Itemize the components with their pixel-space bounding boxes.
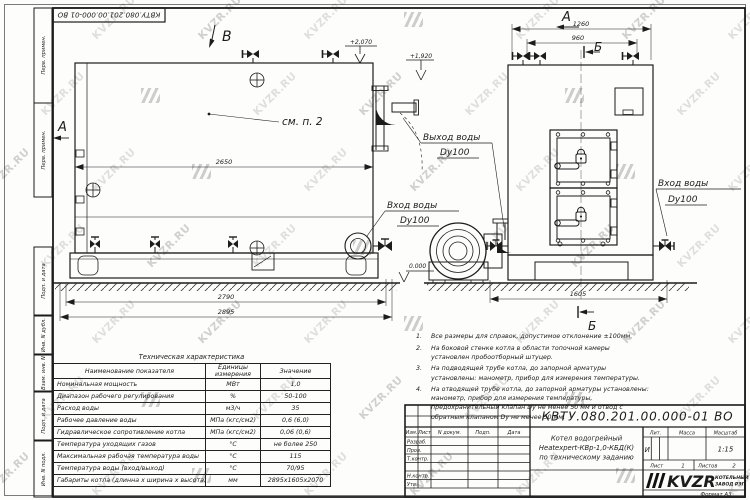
tech-characteristics: Техническая характеристика Наименование … [53, 352, 330, 487]
datum-mark-icon [250, 73, 264, 87]
company-logo-text: KVZR [667, 472, 716, 491]
col-header-unit: Единицы измерения [206, 364, 261, 379]
table-row: Максимальная рабочая температура воды °С… [54, 451, 331, 463]
sheet-value: 1 [681, 464, 685, 470]
table-row: Гидравлическое сопротивление котла МПа (… [54, 427, 331, 439]
dim-2790: 2790 [218, 293, 235, 301]
section-b-bottom-arrow [578, 306, 594, 318]
view-b-arrow [209, 25, 215, 48]
col-data: Дата [507, 430, 521, 436]
safety-valve-icon [243, 50, 260, 63]
table-row: Диапазон рабочего регулирования % 50-100 [54, 391, 331, 403]
view-a-top-label: А [561, 10, 571, 25]
product-name-line2: Heatexpert-КВр-1,0-КБД(К) [539, 444, 634, 452]
safety-valve-icon [623, 52, 640, 65]
view-a-left-label: А [57, 120, 67, 135]
drawing-sheet: KVZR.RUKVZR.RUKVZR.RUKVZR.RUKVZR.RUKVZR.… [0, 0, 750, 500]
stamp-perv-primen-1: Перв. примен. [41, 36, 47, 75]
top-designation-stamp: КВТУ.080.201.00.000-01 ВО [53, 8, 165, 22]
top-designation-text: КВТУ.080.201.00.000-01 ВО [57, 11, 160, 20]
table-header-row: Наименование показателя Единицы измерени… [54, 364, 331, 379]
staff-razrab: Разраб. [407, 440, 427, 446]
boiler-front-view [424, 50, 697, 302]
outlet-label-line2: Dy100 [440, 148, 470, 158]
drain-valve-icon [90, 237, 100, 253]
safety-valve-icon [530, 52, 547, 65]
col-podp: Подп. [475, 430, 490, 436]
sheets-value: 2 [732, 464, 736, 470]
water-inlet-flange [345, 233, 371, 259]
view-b-label: В [222, 29, 232, 45]
elevation-top-label: +2,070 [350, 39, 372, 46]
table-row: Рабочее давление воды МПа (кгс/см2) 0,6 … [54, 415, 331, 427]
side-drain-valve-icon [373, 239, 392, 251]
elevation-zero-label: 0.000 [409, 263, 426, 270]
tech-table-title: Техническая характеристика [53, 352, 330, 363]
tech-table: Наименование показателя Единицы измерени… [53, 363, 331, 487]
col-header-value: Значение [261, 364, 331, 379]
table-row: Температура воды (вход/выход) °С 70/95 [54, 463, 331, 475]
scale-value: 1:15 [718, 446, 734, 454]
table-row: Габариты котла (длинна х ширина х высота… [54, 475, 331, 487]
stamp-inv-dubl: Инв. N дубл. [41, 318, 47, 352]
water-outlet-pipe [372, 86, 422, 172]
dim-1605: 1605 [570, 290, 587, 298]
staff-nkontr: Н.контр. [407, 474, 429, 480]
dim-2650: 2650 [216, 158, 233, 166]
boiler-door-upper [550, 130, 617, 188]
blower-fan [429, 223, 502, 283]
notes-list: 1. Все размеры для справок, допустимое о… [416, 332, 649, 424]
see-note-label: см. п. 2 [282, 116, 323, 128]
lit-label: Лит. [649, 431, 662, 437]
drain-valve-icon [228, 237, 238, 253]
elevation-mark-top [345, 46, 377, 63]
inlet-label-line2: Dy100 [400, 216, 430, 226]
col-izm: Изм. [406, 430, 418, 436]
product-name-line1: Котел водогрейный [551, 435, 623, 443]
note-item: 3. На подводящей трубе котла, до запорно… [416, 364, 649, 382]
section-b-bottom-label: Б [588, 319, 596, 333]
drain-valve-icon [150, 237, 160, 253]
scale-label: Масштаб [714, 431, 738, 437]
dim-2895: 2895 [218, 308, 235, 316]
table-row: Номинальная мощность МВт 1,0 [54, 379, 331, 391]
col-ndoc: N докум. [438, 430, 461, 436]
boiler-side-view [52, 50, 422, 291]
table-row: Температура уходящих газов °С не более 2… [54, 439, 331, 451]
inlet-right-line2: Dy100 [668, 195, 698, 205]
datum-mark-icon [86, 183, 100, 197]
stamp-perv-primen-2: Перв. примен. [41, 131, 47, 170]
note-item: 2. На боковой стенке котла в области топ… [416, 344, 649, 362]
inlet-valve-icon [653, 240, 674, 251]
note-item: 4. На отводящей трубе котла, до запорной… [416, 385, 649, 422]
mass-label: Масса [679, 431, 695, 437]
datum-mark-icon [250, 241, 264, 255]
company-name-line1: КОТЕЛЬНЫЙ [715, 473, 749, 481]
inlet-right-line1: Вход воды [658, 179, 708, 189]
stamp-podp-data-2: Подп. и дата [41, 398, 47, 433]
safety-valve-icon [513, 52, 530, 65]
side-view-dimensions: 2650 2790 2895 +2,070 +1,920 [53, 25, 504, 321]
staff-tkontr: Т.контр. [407, 457, 429, 463]
sheet-label: Лист [649, 464, 664, 470]
section-b-top-label: Б [594, 40, 602, 54]
left-stamp-column: Перв. примен. Перв. примен. Подп. и дата… [34, 8, 52, 497]
company-name-line2: ЗАВОД РЭП [715, 482, 746, 488]
dim-960: 960 [572, 34, 584, 42]
note-item: 1. Все размеры для справок, допустимое о… [416, 332, 649, 341]
col-header-name: Наименование показателя [54, 364, 206, 379]
staff-utv: Утв. [407, 482, 418, 488]
outlet-label-line1: Выход воды [423, 133, 480, 143]
elevation-mark-pipe [406, 60, 434, 80]
table-row: Расход воды м3/ч 35 [54, 403, 331, 415]
product-name-line3: по техническому заданию [539, 454, 634, 462]
safety-valve-icon [323, 50, 340, 63]
format-label: Формат А3 [700, 492, 732, 498]
inlet-label-line1: Вход воды [387, 201, 437, 211]
stamp-podp-data-1: Подп. и дата [41, 263, 47, 298]
kvzr-logo-icon [646, 473, 666, 488]
boiler-door-lower [550, 188, 617, 245]
elevation-pipe-label: +1,920 [410, 53, 432, 60]
sheets-label: Листов [697, 464, 717, 470]
col-list: Лист [417, 430, 432, 436]
staff-prov: Пров. [407, 448, 422, 454]
stamp-inv-podl: Инв. N подл. [41, 452, 47, 486]
stamp-vzam-inv: Взам. инв. N [41, 356, 47, 390]
view-a-left-arrow [53, 136, 69, 141]
lit-value: И [645, 446, 651, 454]
